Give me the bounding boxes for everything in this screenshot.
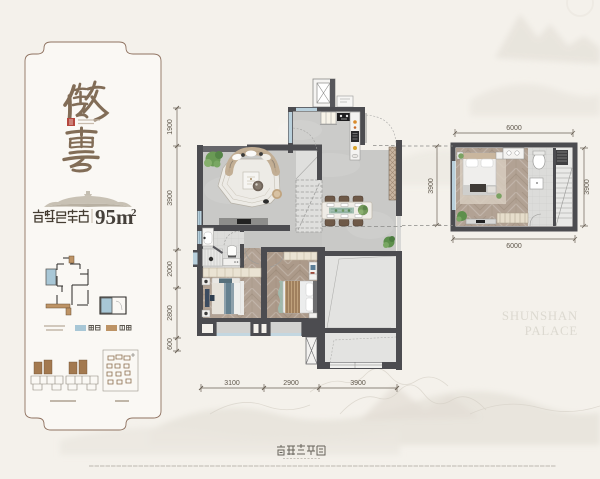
svg-text:2900: 2900 [283,380,299,387]
svg-text:1900: 1900 [167,119,174,135]
svg-text:3900: 3900 [350,380,366,387]
svg-text:2000: 2000 [167,261,174,277]
svg-text:2800: 2800 [167,305,174,321]
svg-text:3100: 3100 [224,380,240,387]
svg-text:2: 2 [131,207,137,219]
svg-text:6000: 6000 [506,125,522,132]
svg-text:3900: 3900 [167,190,174,206]
svg-text:PALACE: PALACE [525,324,578,338]
svg-text:3900: 3900 [584,179,591,195]
svg-text:3900: 3900 [428,178,435,194]
svg-text:SHUNSHAN: SHUNSHAN [502,309,578,323]
svg-text:95m: 95m [95,205,134,229]
svg-text:6000: 6000 [506,243,522,250]
svg-text:600: 600 [167,338,174,350]
